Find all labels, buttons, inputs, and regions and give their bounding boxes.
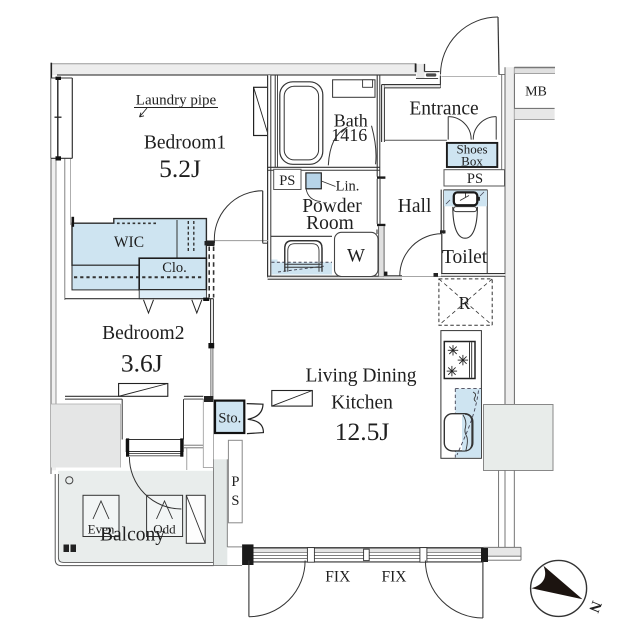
svg-text:MB: MB bbox=[525, 84, 547, 99]
svg-text:Box: Box bbox=[461, 153, 483, 168]
svg-text:Sto.: Sto. bbox=[218, 410, 241, 426]
svg-text:Entrance: Entrance bbox=[409, 98, 478, 119]
svg-text:Clo.: Clo. bbox=[162, 260, 187, 276]
svg-text:3.6J: 3.6J bbox=[121, 349, 163, 378]
svg-text:PS: PS bbox=[467, 171, 483, 187]
svg-text:P: P bbox=[231, 474, 239, 490]
svg-text:Laundry pipe: Laundry pipe bbox=[136, 93, 217, 109]
svg-text:Kitchen: Kitchen bbox=[331, 392, 393, 413]
svg-text:W: W bbox=[347, 245, 365, 266]
svg-text:WIC: WIC bbox=[114, 234, 144, 251]
svg-text:Living Dining: Living Dining bbox=[305, 365, 416, 386]
svg-text:FIX: FIX bbox=[325, 569, 350, 586]
svg-text:PS: PS bbox=[279, 173, 295, 189]
svg-text:R: R bbox=[459, 293, 471, 313]
svg-text:S: S bbox=[231, 493, 239, 509]
svg-text:Room: Room bbox=[306, 213, 354, 234]
svg-text:5.2J: 5.2J bbox=[159, 154, 201, 183]
svg-text:Balcony: Balcony bbox=[100, 524, 165, 545]
svg-text:12.5J: 12.5J bbox=[335, 417, 390, 446]
svg-text:Hall: Hall bbox=[398, 196, 432, 217]
svg-text:1416: 1416 bbox=[331, 125, 367, 145]
svg-text:Toilet: Toilet bbox=[442, 247, 488, 268]
svg-text:Bedroom1: Bedroom1 bbox=[144, 133, 226, 154]
svg-text:FIX: FIX bbox=[382, 569, 407, 586]
svg-text:Lin.: Lin. bbox=[336, 178, 360, 194]
svg-text:Bedroom2: Bedroom2 bbox=[102, 323, 184, 344]
